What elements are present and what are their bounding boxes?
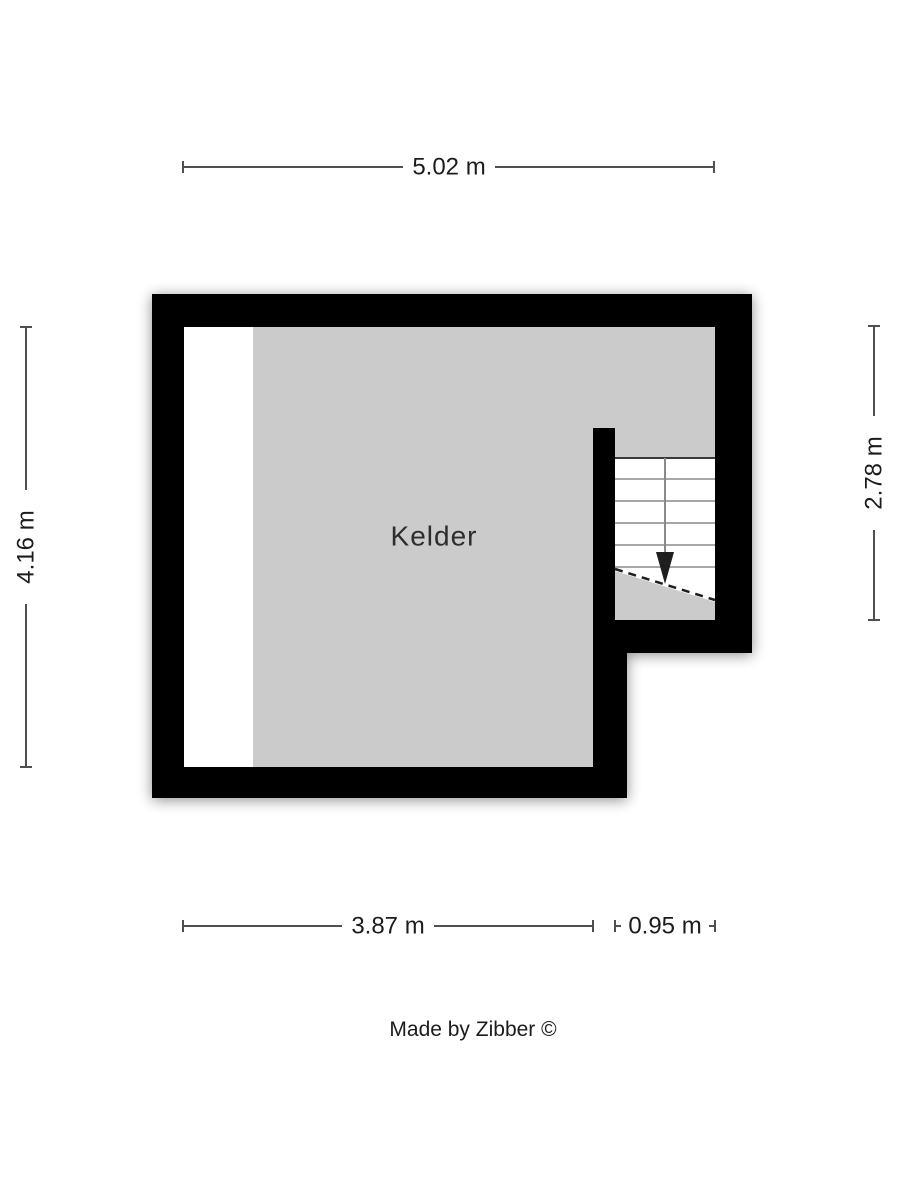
dimension-right: 2.78 m [861, 326, 888, 620]
dimension-left: 4.16 m [13, 327, 40, 767]
dimension-top-label: 5.02 m [412, 154, 485, 181]
dimension-bottom-stair: 0.95 m [615, 913, 715, 940]
floor-white-strip [184, 327, 253, 767]
floorplan-page: Kelder 5.02 m 4.16 m 2.78 m [0, 0, 900, 1200]
dimension-right-label: 2.78 m [861, 436, 888, 509]
dimension-bottom-main-label: 3.87 m [351, 913, 424, 940]
credit-label: Made by Zibber © [389, 1018, 557, 1041]
staircase [615, 457, 715, 620]
dimension-left-label: 4.16 m [13, 510, 40, 583]
floorplan-canvas: Kelder 5.02 m 4.16 m 2.78 m [0, 0, 900, 1200]
room-label: Kelder [391, 521, 478, 552]
dimension-bottom-stair-label: 0.95 m [628, 913, 701, 940]
dimension-top: 5.02 m [183, 154, 714, 181]
dimension-bottom-main: 3.87 m [183, 913, 593, 940]
